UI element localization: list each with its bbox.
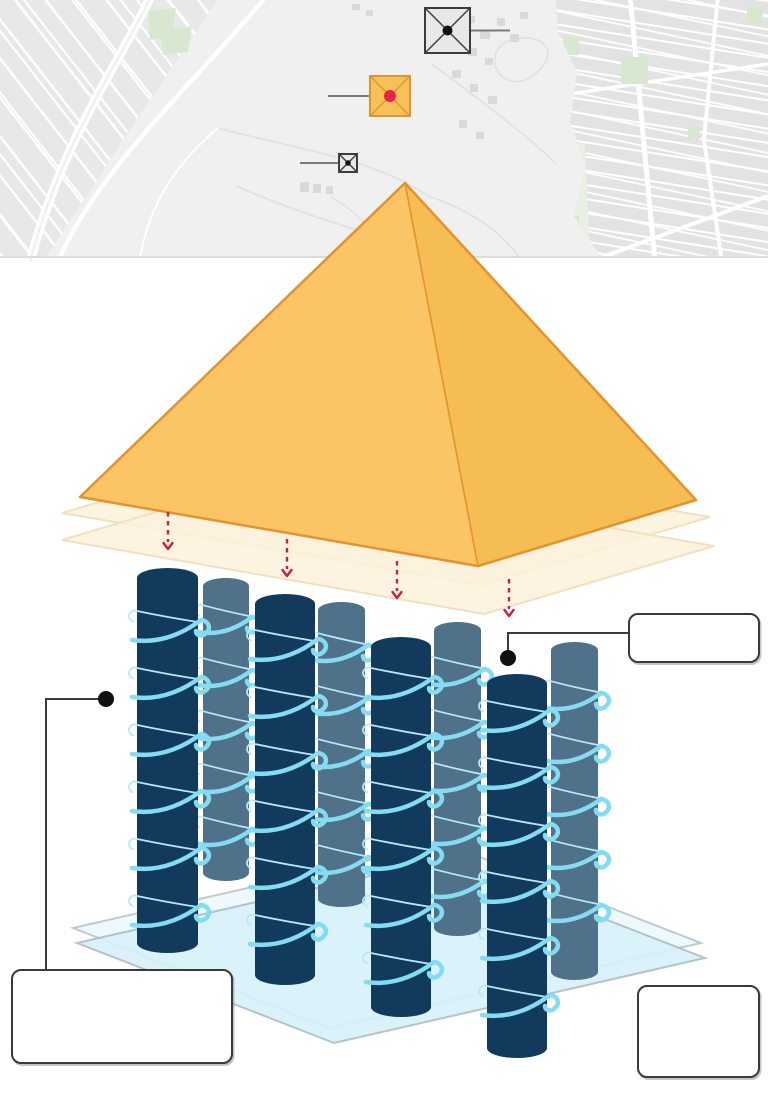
callout-anchor-dot-right: [500, 650, 516, 666]
marker-dot: [345, 160, 351, 166]
marker-dot-red: [384, 90, 396, 102]
column-3-dark: [247, 594, 326, 985]
column-7-dark: [479, 674, 558, 1058]
infographic-stage: [0, 0, 768, 1098]
callout-anchor-dot-left: [98, 691, 114, 707]
callout-box-left: [11, 969, 233, 1064]
scene-canvas: [0, 0, 768, 1098]
column-1-dark: [129, 568, 209, 953]
callout-box-right: [628, 613, 760, 663]
column-5-dark: [363, 637, 442, 1017]
arrowhead-down-icon: [505, 610, 514, 616]
marker-dot: [443, 26, 453, 36]
callout-box-bottom-right: [637, 985, 760, 1078]
